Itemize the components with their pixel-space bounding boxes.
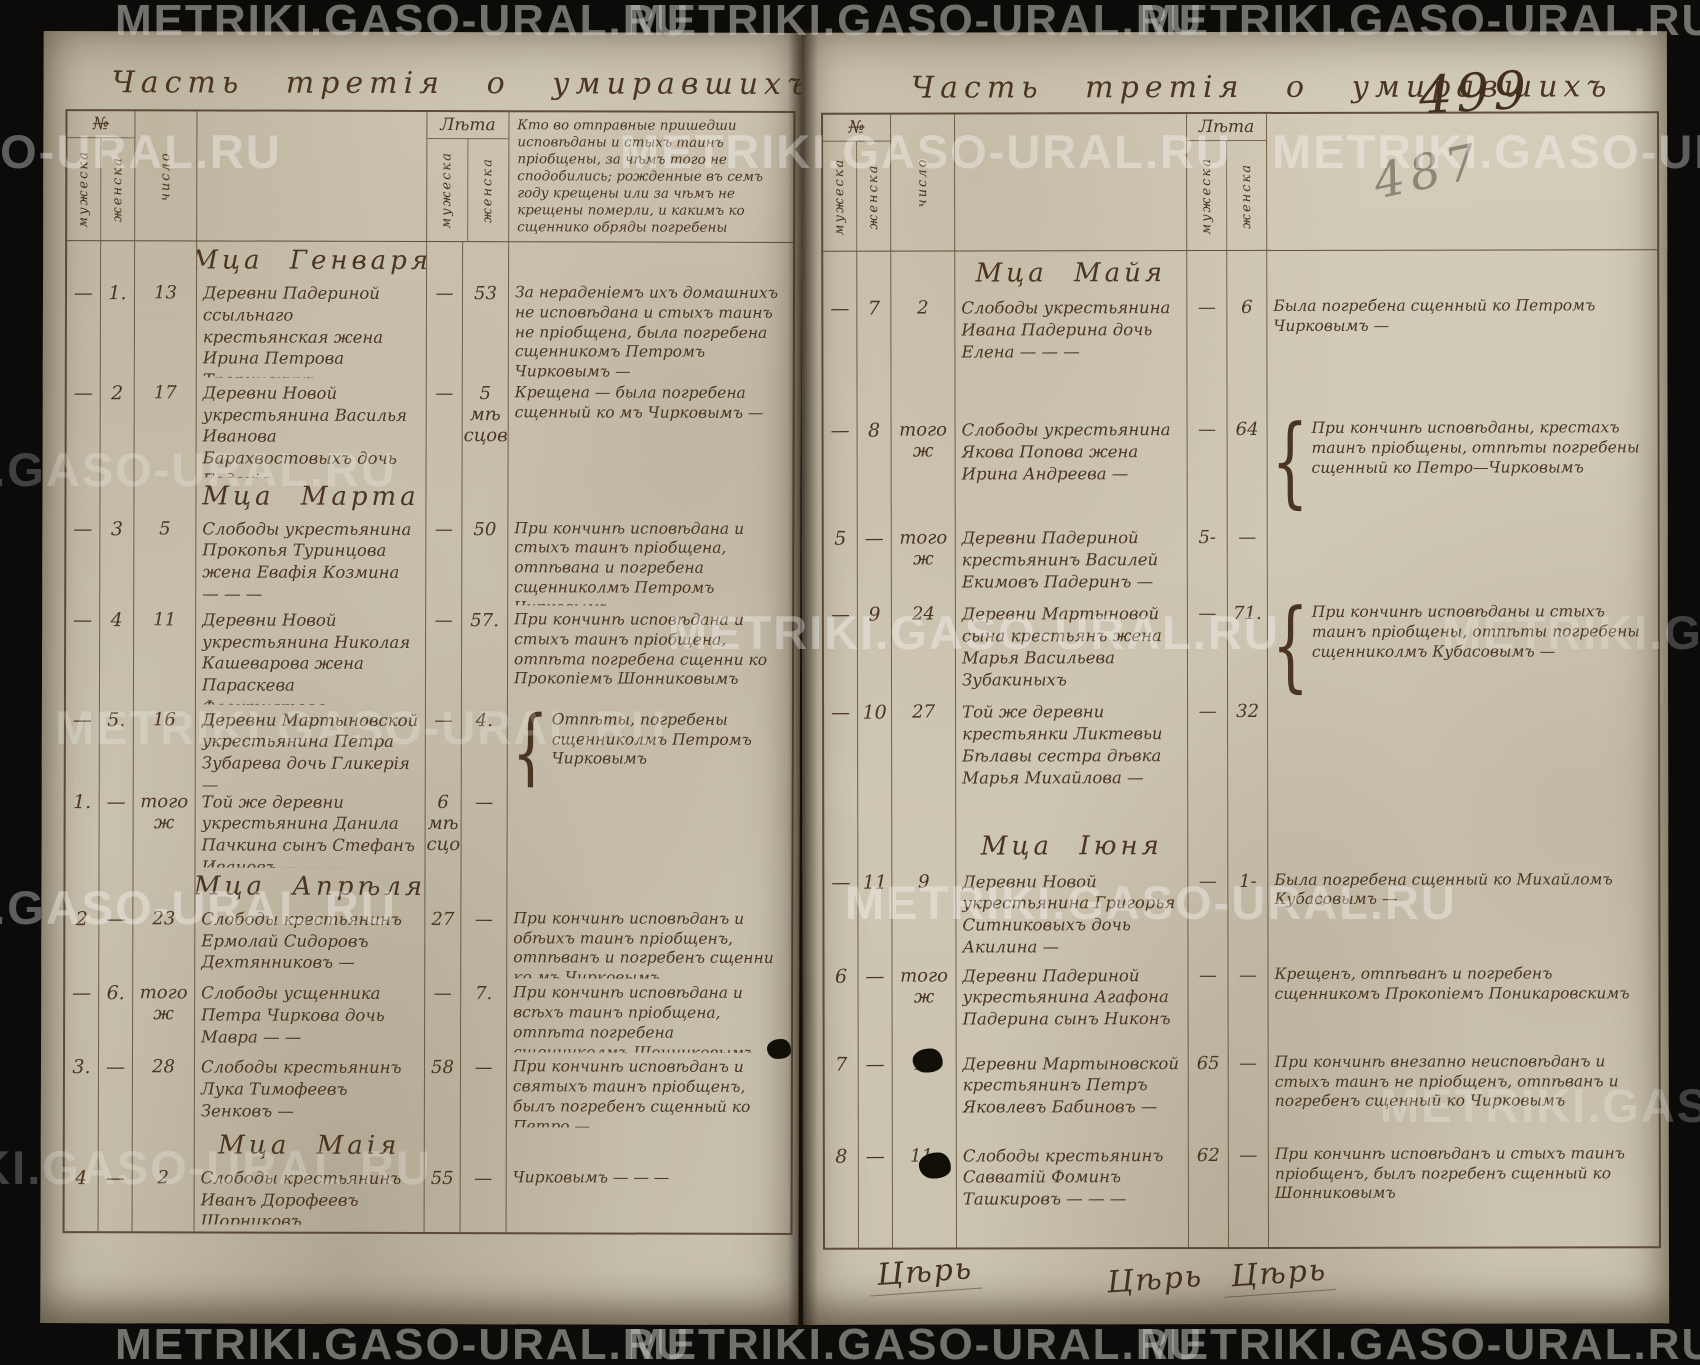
- month-header: Мца Маія: [65, 1126, 791, 1164]
- age-male: 55: [425, 1163, 461, 1225]
- count-female: —: [859, 1140, 893, 1220]
- burial-note: Была погребена сщенный ко Петромъ Чирков…: [1267, 292, 1657, 415]
- col-header-age-male: мужеска: [439, 151, 454, 229]
- age-male: —: [427, 378, 463, 478]
- count-female: —: [99, 1162, 133, 1224]
- age-female: 1-: [1228, 866, 1268, 960]
- count-male: —: [67, 277, 101, 377]
- count-male: —: [67, 377, 101, 477]
- day-of-month: 28: [133, 1052, 195, 1127]
- age-female: 4.: [462, 705, 508, 787]
- count-female: 6.: [99, 977, 133, 1051]
- deceased-description: Деревни Падериной ссыльнаго крестьянская…: [197, 277, 427, 377]
- deceased-description: Слободы крестьянинъ Лука Тимофеевъ Зенко…: [195, 1052, 425, 1127]
- table-row: — 8 того ж Слободы укрестьянина Якова По…: [824, 414, 1658, 523]
- count-male: —: [824, 697, 858, 825]
- age-female: 5 мѣ сцовъ: [463, 378, 509, 478]
- deceased-description: Слободы крестьянинъ Иванъ Дорофеевъ Шорн…: [195, 1162, 425, 1225]
- table-row: — 5. 16 Деревни Мартыновской укрестьянин…: [66, 704, 792, 788]
- deceased-description: Деревни Падериной крестьянинъ Василей Ек…: [956, 522, 1188, 598]
- table-row: — 9 24 Деревни Мартыновой сына крестьянъ…: [824, 598, 1658, 697]
- day-of-month: 16: [134, 704, 196, 786]
- burial-note: Крещена — была погребена сщенный ко мъ Ч…: [509, 378, 793, 479]
- burial-note: [508, 787, 792, 869]
- burial-note: За нераденіемъ ихъ домашнихъ не исповѣда…: [509, 278, 793, 379]
- count-female: —: [858, 960, 892, 1048]
- table-row: — 10 27 Той же деревни крестьянки Ликтев…: [824, 696, 1658, 825]
- count-female: 11: [858, 866, 892, 960]
- burial-note: При кончинѣ исповѣдана и стыхъ таинъ прі…: [508, 605, 792, 706]
- burial-note: При кончинѣ внезапно неисповѣданъ и стых…: [1269, 1047, 1659, 1140]
- month-header: Мца Апрѣля: [65, 867, 791, 905]
- age-male: —: [427, 278, 463, 378]
- deceased-description: Слободы укрестьянина Ивана Падерина дочь…: [955, 292, 1187, 414]
- day-of-month: того ж: [134, 786, 196, 867]
- age-male: —: [1187, 292, 1227, 414]
- deceased-description: Деревни Новой укрестьянина Григорья Ситн…: [956, 866, 1188, 960]
- count-male: 3.: [65, 1051, 99, 1125]
- age-male: —: [1188, 414, 1228, 522]
- page-title: Часть третія о умиравшихъ: [112, 65, 814, 102]
- age-female: 53: [463, 278, 509, 378]
- day-of-month: того ж: [892, 960, 956, 1048]
- age-male: 58: [425, 1052, 461, 1126]
- number-sign: №: [93, 114, 109, 134]
- count-male: 5: [824, 523, 858, 599]
- page-right: Часть третія о умиравшихъ 499 487 № муже…: [801, 31, 1669, 1325]
- age-female: —: [1229, 1048, 1269, 1140]
- col-header-age: Лѣта мужеска женска: [1187, 114, 1267, 250]
- month-header: Мца Генваря: [67, 241, 793, 279]
- count-female: 10: [858, 697, 892, 825]
- day-of-month: 2: [891, 293, 955, 415]
- empty-row: [65, 1224, 791, 1233]
- col-header-day: число: [135, 111, 197, 240]
- table-row: — 1. 13 Деревни Падериной ссыльнаго крес…: [67, 277, 793, 379]
- count-female: —: [99, 1052, 133, 1126]
- count-male: 1.: [66, 786, 100, 867]
- age-male: 62: [1189, 1140, 1229, 1220]
- month-title: Мца Маія: [218, 1129, 400, 1163]
- col-header-number: № мужеска женска: [67, 111, 135, 240]
- count-female: 4: [100, 604, 134, 704]
- grouping-brace: {: [1272, 601, 1309, 690]
- col-header-age-female: женска: [1239, 163, 1254, 229]
- day-of-month: 9: [892, 866, 956, 960]
- signature-mark: Цѣрь: [1222, 1252, 1337, 1298]
- day-of-month: того ж: [133, 977, 195, 1052]
- burial-note: [1268, 696, 1658, 825]
- count-male: 7: [825, 1048, 859, 1140]
- col-header-burial: Кто во отправные пришедши исповѣданы и с…: [509, 112, 793, 242]
- age-male: —: [1188, 960, 1228, 1048]
- count-female: —: [859, 1048, 893, 1140]
- month-title: Мца Іюня: [981, 829, 1163, 864]
- col-header-age: Лѣта мужеска женска: [427, 112, 509, 241]
- age-female: —: [461, 1163, 507, 1225]
- deceased-description: Слободы крестьянинъ Ермолай Сидоровъ Дех…: [195, 903, 425, 978]
- age-female: 57.: [462, 605, 508, 705]
- register-table-right: № мужеска женска число Лѣта мужеска женс…: [821, 111, 1661, 1249]
- count-female: 7: [857, 293, 891, 415]
- table-row: — 2 17 Деревни Новой укрестьянина Василь…: [67, 377, 793, 479]
- age-male: —: [1188, 696, 1228, 824]
- burial-note: {При кончинѣ исповѣданы, крестахъ таинъ …: [1268, 414, 1658, 523]
- count-male: —: [66, 604, 100, 704]
- age-female: 50: [462, 514, 508, 606]
- age-female: —: [1228, 960, 1268, 1048]
- col-header-description: [197, 111, 427, 241]
- burial-note: Чирковымъ — — —: [507, 1163, 791, 1226]
- table-row: — 3 5 Слободы укрестьянина Прокопья Тури…: [66, 513, 792, 606]
- age-female: —: [461, 904, 507, 978]
- month-header: Мца Іюня: [824, 824, 1658, 867]
- burial-note: При кончинѣ исповѣданъ и стыхъ таинъ прі…: [1269, 1139, 1659, 1220]
- age-male: 5-: [1188, 522, 1228, 598]
- day-of-month: 24: [892, 599, 956, 697]
- empty-row: [825, 1219, 1659, 1248]
- age-female: —: [1229, 1140, 1269, 1220]
- col-header-male-count: мужеска: [76, 150, 91, 228]
- table-row: — 4 11 Деревни Новой укрестьянина Никола…: [66, 604, 792, 706]
- grouping-brace: {: [512, 708, 549, 788]
- burial-note: При кончинѣ исповѣдана и стыхъ таинъ прі…: [508, 514, 792, 606]
- count-male: 2: [65, 903, 99, 977]
- count-female: 8: [858, 415, 892, 523]
- col-header-male-count: мужеска: [832, 157, 847, 235]
- day-of-month: 27: [892, 697, 956, 825]
- age-female: —: [1228, 522, 1268, 598]
- age-male: —: [425, 978, 461, 1052]
- day-of-month: 5: [134, 513, 196, 605]
- number-sign: №: [848, 118, 864, 138]
- col-header-burial: [1267, 113, 1657, 250]
- age-male: —: [1188, 866, 1228, 960]
- burial-note: {При кончинѣ исповѣданы и стыхъ таинъ пр…: [1268, 598, 1658, 697]
- watermark-text: METRIKI.GASO-URAL.RU: [115, 1320, 690, 1365]
- table-row: — 11 9 Деревни Новой укрестьянина Григор…: [824, 865, 1658, 961]
- signature-mark: Цѣрь: [868, 1251, 983, 1297]
- count-male: —: [824, 415, 858, 523]
- burial-note: При кончинѣ исповѣдана и всѣхъ таинъ прі…: [507, 978, 791, 1053]
- ink-blot: [913, 1049, 943, 1073]
- count-male: —: [824, 599, 858, 697]
- count-male: —: [65, 977, 99, 1051]
- age-male: 27: [425, 904, 461, 978]
- burial-note: {Отпѣты, погребены сщенниколмъ Петромъ Ч…: [508, 705, 792, 788]
- table-row: 3. — 28 Слободы крестьянинъ Лука Тимофее…: [65, 1051, 791, 1127]
- deceased-description: Слободы усщенника Петра Чиркова дочь Мав…: [195, 977, 425, 1052]
- deceased-description: Той же деревни крестьянки Ликтевьи Бѣлав…: [956, 696, 1188, 824]
- age-female: —: [461, 1053, 507, 1127]
- age-male: —: [426, 605, 462, 705]
- day-of-month: 11: [134, 604, 196, 704]
- col-header-day: число: [891, 114, 955, 250]
- age-female: —: [462, 787, 508, 868]
- deceased-description: Слободы укрестьянина Прокопья Туринцова …: [196, 513, 426, 605]
- day-of-month: того ж: [892, 523, 956, 599]
- month-title: Мца Апрѣля: [195, 869, 425, 903]
- day-of-month: 17: [135, 377, 197, 477]
- watermark-text: METRIKI.GASO-URAL.RU: [628, 1320, 1203, 1365]
- col-header-age-female: женска: [480, 157, 495, 223]
- burial-note: Крещенъ, отпѣванъ и погребенъ сщенникомъ…: [1268, 959, 1658, 1048]
- ink-blot: [919, 1152, 951, 1178]
- age-label: Лѣта: [440, 115, 496, 135]
- count-male: 4: [65, 1162, 99, 1224]
- col-header-female-count: женска: [866, 163, 881, 229]
- table-row: 5 — того ж Деревни Падериной крестьянинъ…: [824, 522, 1658, 599]
- table-row: 6 — того ж Деревни Падериной укрестьянин…: [824, 959, 1658, 1048]
- col-header-female-count: женска: [110, 156, 125, 222]
- count-female: —: [99, 903, 133, 977]
- age-male: —: [426, 705, 462, 787]
- book-spine-fold: [788, 28, 818, 1328]
- burial-note: При кончинѣ исповѣданъ и обѣихъ таинъ пр…: [507, 904, 791, 979]
- count-female: 5.: [100, 704, 134, 786]
- age-female: 32: [1228, 696, 1268, 824]
- day-of-month: 23: [133, 903, 195, 978]
- deceased-description: Той же деревни укрестьянина Данила Пачки…: [196, 786, 426, 868]
- age-female: 71.: [1228, 598, 1268, 696]
- table-row: 7 — 10 Деревни Мартыновской крестьянинъ …: [825, 1047, 1659, 1140]
- deceased-description: Деревни Мартыновской укрестьянина Петра …: [196, 704, 426, 787]
- age-female: 7.: [461, 978, 507, 1052]
- month-title: Мца Майя: [975, 256, 1166, 291]
- month-header: Мца Майя: [823, 250, 1657, 293]
- count-male: 8: [825, 1140, 859, 1220]
- grouping-brace: {: [1272, 417, 1309, 506]
- table-row: — 6. того ж Слободы усщенника Петра Чирк…: [65, 977, 791, 1053]
- count-male: —: [824, 866, 858, 960]
- age-male: —: [426, 514, 462, 606]
- burial-note: Была погребена сщенный ко Михайломъ Куба…: [1268, 865, 1658, 960]
- day-of-month: 11.: [893, 1140, 957, 1220]
- col-header-description: [955, 114, 1187, 250]
- age-female: 6: [1227, 292, 1267, 414]
- watermark-text: METRIKI.GASO-URAL.RU: [1140, 1320, 1700, 1365]
- count-female: —: [100, 786, 134, 867]
- day-of-month: 2: [133, 1162, 195, 1224]
- deceased-description: Деревни Мартыновской крестьянинъ Петръ Я…: [957, 1048, 1189, 1140]
- page-left: Часть третія о умиравшихъ № мужеска женс…: [40, 31, 801, 1325]
- table-row: — 7 2 Слободы укрестьянина Ивана Падерин…: [823, 292, 1657, 415]
- table-row: 4 — 2 Слободы крестьянинъ Иванъ Дорофеев…: [65, 1162, 791, 1226]
- scanned-document: Часть третія о умиравшихъ № мужеска женс…: [0, 0, 1700, 1365]
- count-female: 1.: [101, 277, 135, 377]
- deceased-description: Деревни Падериной укрестьянина Агафона П…: [956, 960, 1188, 1048]
- day-of-month: того ж: [892, 415, 956, 523]
- col-header-number: № мужеска женска: [823, 115, 891, 251]
- table-row: 1. — того ж Той же деревни укрестьянина …: [66, 786, 792, 869]
- count-male: —: [66, 513, 100, 605]
- signature-mark: Цѣрь: [1098, 1258, 1213, 1303]
- month-title: Мца Марта: [202, 479, 420, 513]
- day-of-month: 13: [135, 277, 197, 377]
- deceased-description: Деревни Новой укрестьянина Василья Ивано…: [197, 377, 427, 477]
- month-title: Мца Генваря: [197, 244, 427, 278]
- table-row: 2 — 23 Слободы крестьянинъ Ермолай Сидор…: [65, 903, 791, 979]
- register-table-left: № мужеска женска число Лѣта мужеска женс…: [63, 109, 796, 1235]
- deceased-description: Слободы укрестьянина Якова Попова жена И…: [956, 414, 1188, 522]
- count-female: 9: [858, 599, 892, 697]
- count-female: —: [858, 523, 892, 599]
- month-header: Мца Марта: [66, 477, 792, 515]
- count-male: —: [823, 293, 857, 415]
- age-female: 64: [1228, 414, 1268, 522]
- age-male: —: [1188, 598, 1228, 696]
- age-male: 65: [1189, 1048, 1229, 1140]
- table-header: № мужеска женска число Лѣта мужеска женс…: [823, 113, 1657, 251]
- count-male: —: [66, 704, 100, 786]
- deceased-description: Слободы крестьянинъ Савватій Фоминъ Ташк…: [957, 1140, 1189, 1220]
- count-male: 6: [824, 960, 858, 1048]
- age-male: 6 мѣ сцовъ: [426, 787, 462, 868]
- count-female: 3: [100, 513, 134, 605]
- burial-note: При кончинѣ исповѣданъ и святыхъ таинъ п…: [507, 1053, 791, 1128]
- table-header: № мужеска женска число Лѣта мужеска женс…: [67, 111, 793, 243]
- deceased-description: Деревни Мартыновой сына крестьянъ жена М…: [956, 598, 1188, 696]
- deceased-description: Деревни Новой укрестьянина Николая Кашев…: [196, 604, 426, 704]
- table-row: 8 — 11. Слободы крестьянинъ Савватій Фом…: [825, 1139, 1659, 1220]
- count-female: 2: [101, 377, 135, 477]
- age-label: Лѣта: [1199, 117, 1254, 137]
- col-header-age-male: мужеска: [1199, 157, 1214, 235]
- burial-note: [1268, 522, 1658, 599]
